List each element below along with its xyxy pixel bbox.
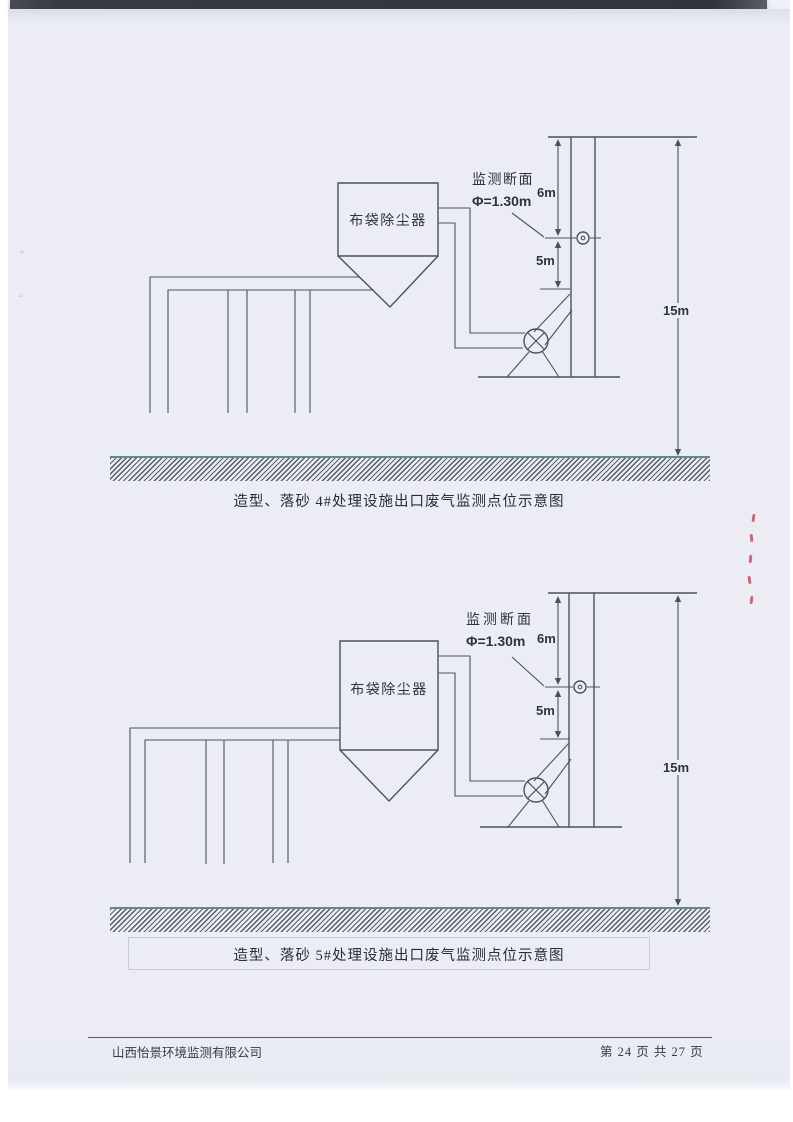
fan-support-legs	[508, 800, 559, 827]
dimension-15m	[675, 139, 681, 456]
dim-15m-label: 15m	[661, 760, 691, 775]
footer-page-number: 第 24 页 共 27 页	[600, 1041, 704, 1060]
fan-icon	[524, 329, 548, 353]
monitoring-point-icon	[545, 681, 600, 693]
fan-support-legs	[507, 351, 559, 377]
inlet-pipes	[130, 728, 340, 864]
monitor-section-label: 监测断面	[472, 169, 534, 189]
ground-hatch	[110, 907, 710, 932]
dim-15m-label: 15m	[661, 303, 691, 318]
dim-5m-label: 5m	[536, 703, 555, 718]
monitoring-point-icon	[545, 232, 601, 244]
dim-6m-label: 6m	[537, 631, 556, 646]
diagram-4-caption: 造型、落砂 4#处理设施出口废气监测点位示意图	[8, 490, 790, 511]
scan-artifact: ≈	[19, 292, 23, 300]
dim-5m-label: 5m	[536, 253, 555, 268]
hopper-shape	[338, 256, 438, 307]
diameter-label: Φ=1.30m	[466, 633, 525, 649]
scanned-report-page: 监测断面 Φ=1.30m 6m 5m 15m 布袋除尘器 造型、落砂 4#处理设…	[0, 0, 793, 1122]
diameter-label: Φ=1.30m	[472, 193, 531, 209]
dimension-15m	[675, 595, 681, 906]
footer-company: 山西怡景环境监测有限公司	[112, 1042, 262, 1061]
equipment-label: 布袋除尘器	[338, 183, 438, 256]
scan-artifact: ≈	[20, 248, 24, 256]
footer-rule	[88, 1037, 712, 1038]
outlet-duct	[438, 656, 525, 796]
diagram-5-linework	[130, 593, 697, 906]
scan-edge-fade-bottom	[8, 1078, 790, 1090]
outlet-duct	[438, 208, 525, 348]
fan-icon	[524, 778, 548, 802]
dim-6m-label: 6m	[537, 185, 556, 200]
hopper-shape	[340, 750, 438, 801]
stack	[548, 593, 697, 827]
leader-line	[512, 213, 544, 237]
leader-line	[512, 657, 544, 686]
inlet-pipes	[150, 277, 372, 413]
diagram-5-caption: 造型、落砂 5#处理设施出口废气监测点位示意图	[8, 944, 790, 965]
stack	[548, 137, 697, 377]
monitor-section-label: 监测断面	[466, 609, 534, 629]
equipment-label: 布袋除尘器	[340, 641, 438, 736]
ground-hatch	[110, 456, 710, 481]
